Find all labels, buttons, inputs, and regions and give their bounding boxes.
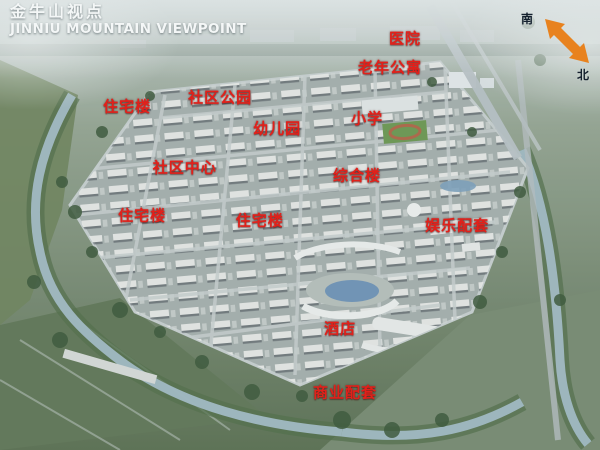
map-label-residential-building-3: 住宅楼 [236,210,284,231]
map-label-entertainment-amenities: 娱乐配套 [425,215,489,236]
map-label-residential-building-2: 住宅楼 [118,205,166,226]
compass-north-label: 北 [577,66,589,83]
map-label-residential-building-1: 住宅楼 [103,96,151,117]
compass-south-label: 南 [521,10,533,27]
map-label-hospital: 医院 [389,27,421,48]
map-label-primary-school: 小学 [351,107,383,128]
map-label-community-center: 社区中心 [153,156,217,177]
title-chinese: 金牛山视点 [10,4,247,21]
map-label-hotel: 酒店 [324,318,356,339]
map-label-senior-apartments: 老年公寓 [358,57,422,78]
map-label-complex-building: 综合楼 [333,165,381,186]
map-label-commercial-amenities: 商业配套 [313,381,377,402]
masterplan-rendering: 金牛山视点 JINNIU MOUNTAIN VIEWPOINT 南 北 医院 老… [0,0,600,450]
map-label-kindergarten: 幼儿园 [253,117,301,138]
aerial-view-image [0,0,600,450]
title-english: JINNIU MOUNTAIN VIEWPOINT [10,22,247,36]
map-label-community-park: 社区公园 [188,87,252,108]
viewpoint-title: 金牛山视点 JINNIU MOUNTAIN VIEWPOINT [10,4,247,36]
compass-arrow-icon [538,12,596,70]
